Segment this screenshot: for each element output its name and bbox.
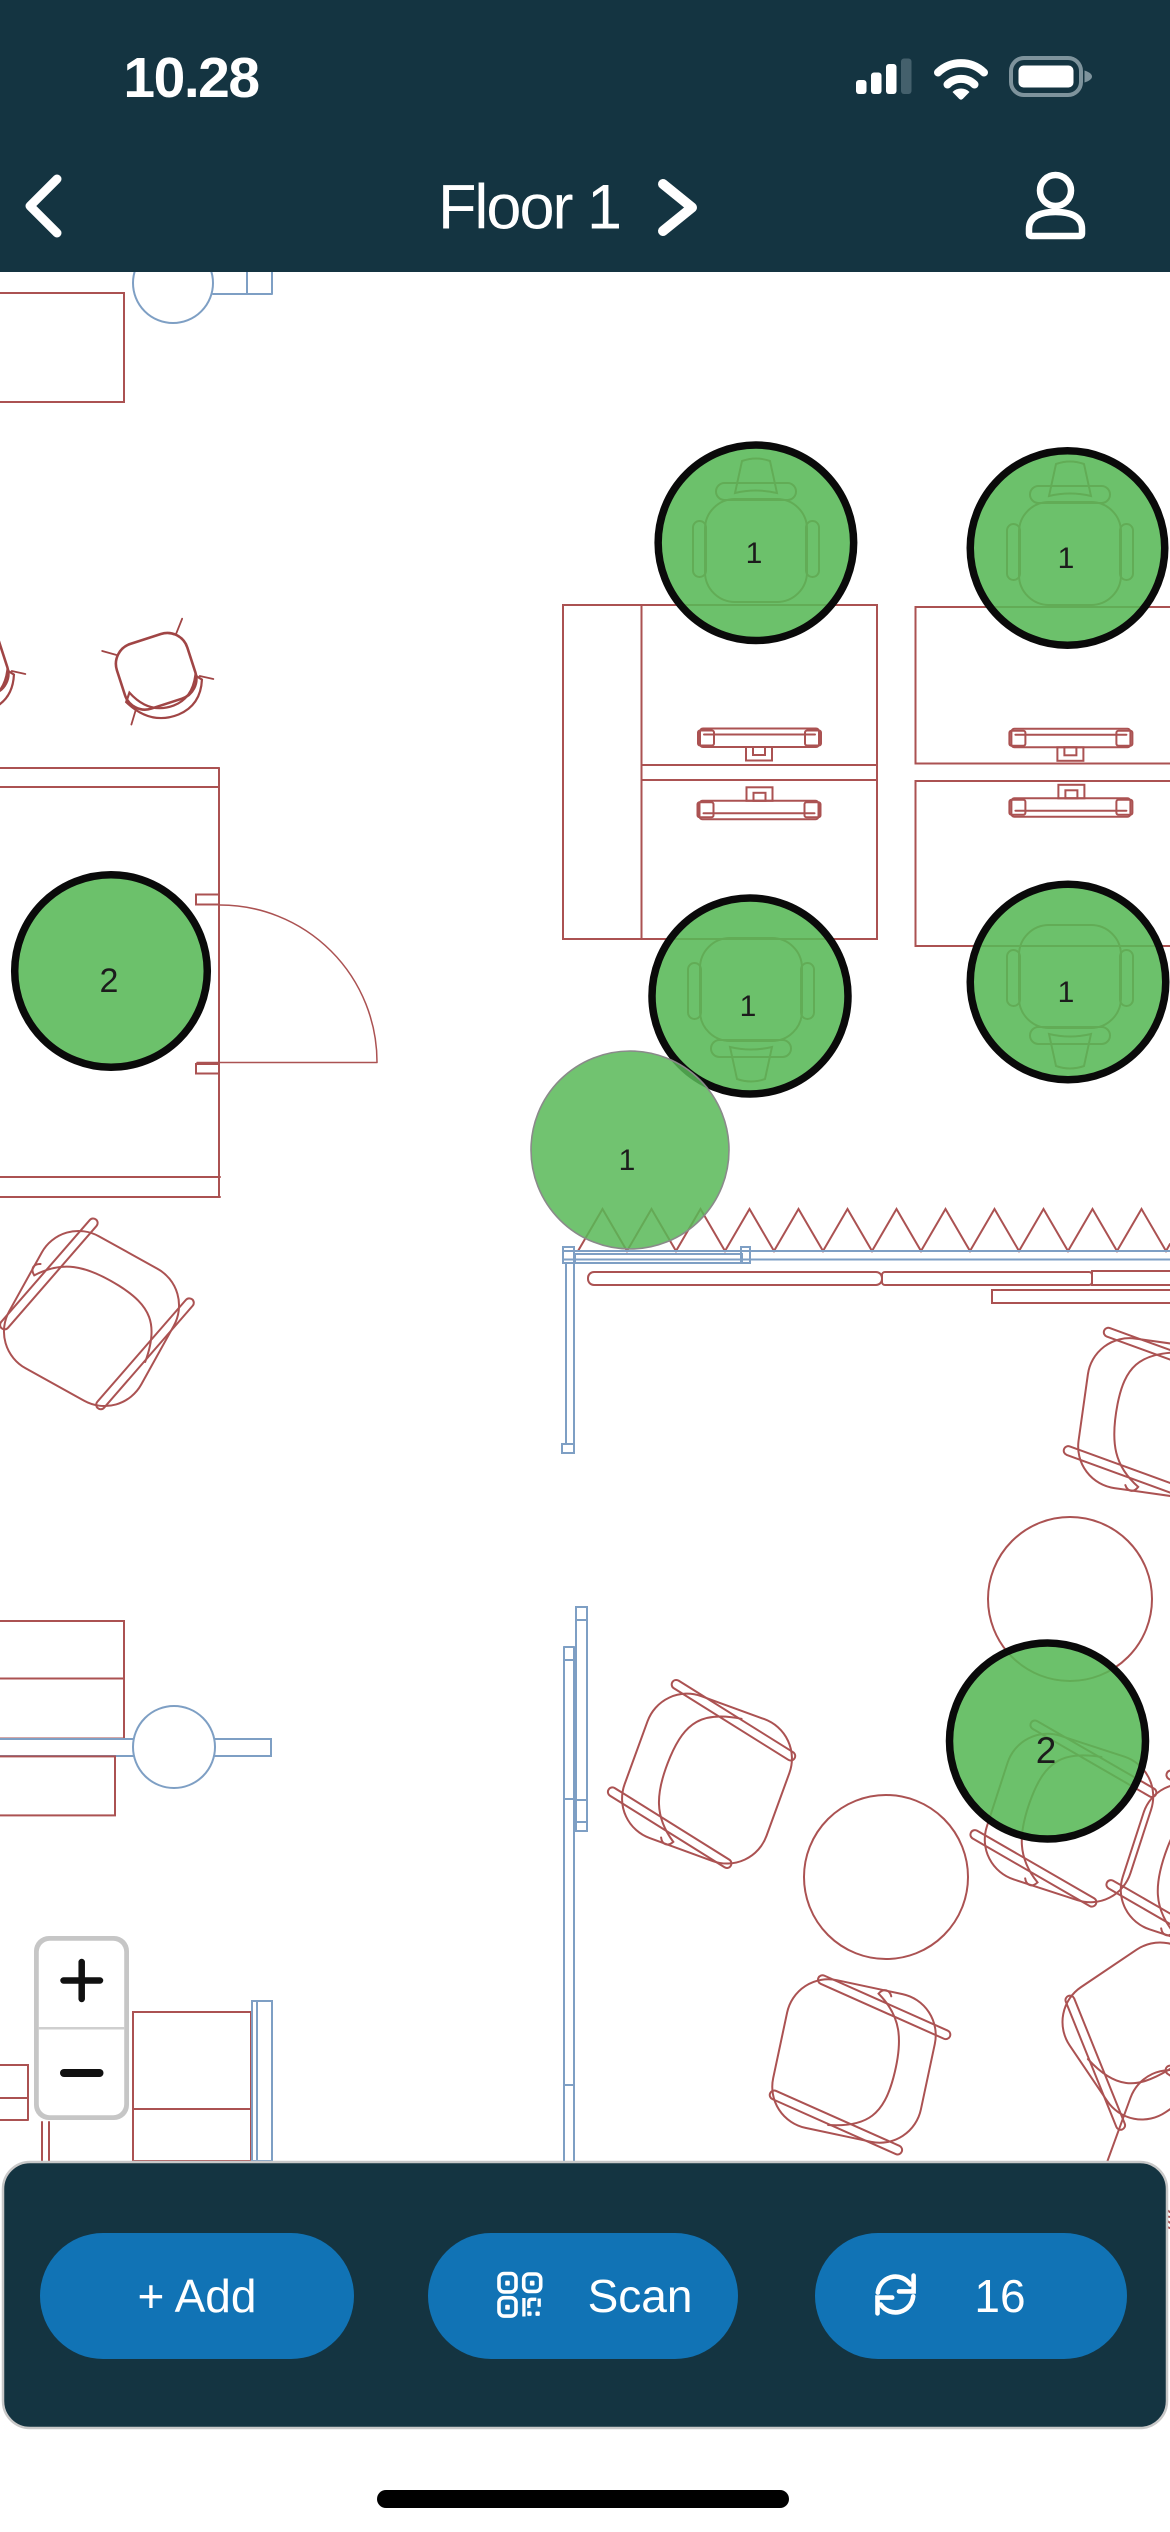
svg-text:Floor 1: Floor 1	[438, 173, 620, 243]
svg-text:2: 2	[1036, 1730, 1057, 1771]
svg-text:1: 1	[746, 537, 763, 570]
svg-text:1: 1	[619, 1144, 636, 1177]
svg-text:+ Add: + Add	[138, 2270, 257, 2322]
svg-text:1: 1	[1058, 542, 1075, 575]
svg-text:16: 16	[974, 2270, 1025, 2322]
svg-text:1: 1	[1058, 976, 1075, 1009]
svg-text:10.28: 10.28	[123, 46, 258, 110]
svg-text:Scan: Scan	[588, 2270, 693, 2322]
svg-text:1: 1	[740, 990, 757, 1023]
svg-text:2: 2	[100, 962, 119, 1000]
